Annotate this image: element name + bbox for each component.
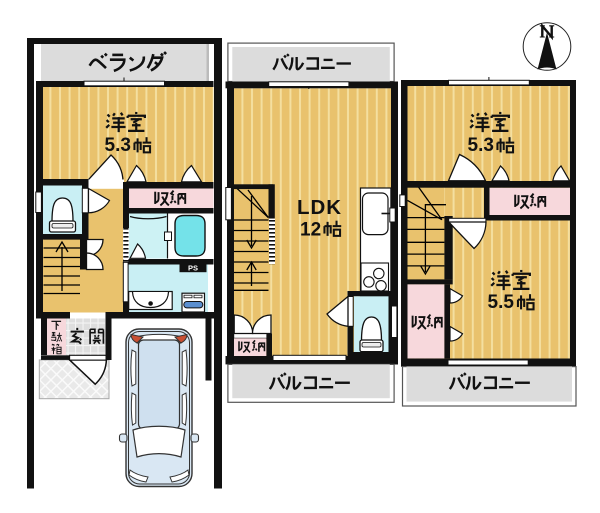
svg-text:5.5: 5.5 bbox=[488, 292, 515, 313]
svg-text:5.3: 5.3 bbox=[468, 135, 494, 156]
svg-text:LDK: LDK bbox=[297, 196, 341, 219]
svg-text:12: 12 bbox=[300, 220, 321, 241]
svg-text:5.3: 5.3 bbox=[105, 135, 131, 156]
svg-text:PS: PS bbox=[188, 264, 198, 273]
